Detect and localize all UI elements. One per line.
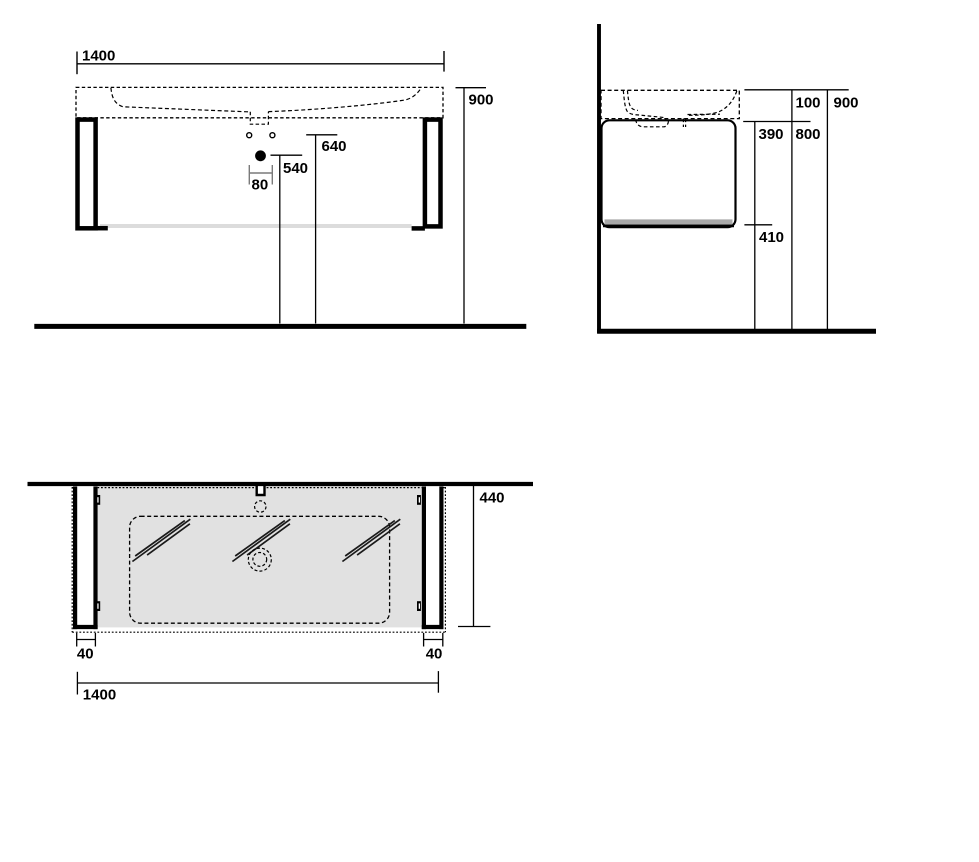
- svg-text:1400: 1400: [82, 48, 115, 65]
- svg-text:640: 640: [322, 138, 347, 155]
- svg-text:40: 40: [77, 646, 94, 663]
- svg-text:800: 800: [796, 126, 821, 143]
- svg-text:540: 540: [283, 160, 308, 177]
- svg-text:900: 900: [834, 95, 859, 112]
- svg-text:390: 390: [759, 126, 784, 143]
- svg-text:440: 440: [480, 490, 505, 507]
- svg-text:40: 40: [426, 646, 443, 663]
- svg-text:100: 100: [796, 95, 821, 112]
- svg-text:80: 80: [252, 177, 269, 194]
- svg-text:900: 900: [469, 92, 494, 109]
- svg-text:1400: 1400: [83, 687, 116, 704]
- svg-text:410: 410: [759, 229, 784, 246]
